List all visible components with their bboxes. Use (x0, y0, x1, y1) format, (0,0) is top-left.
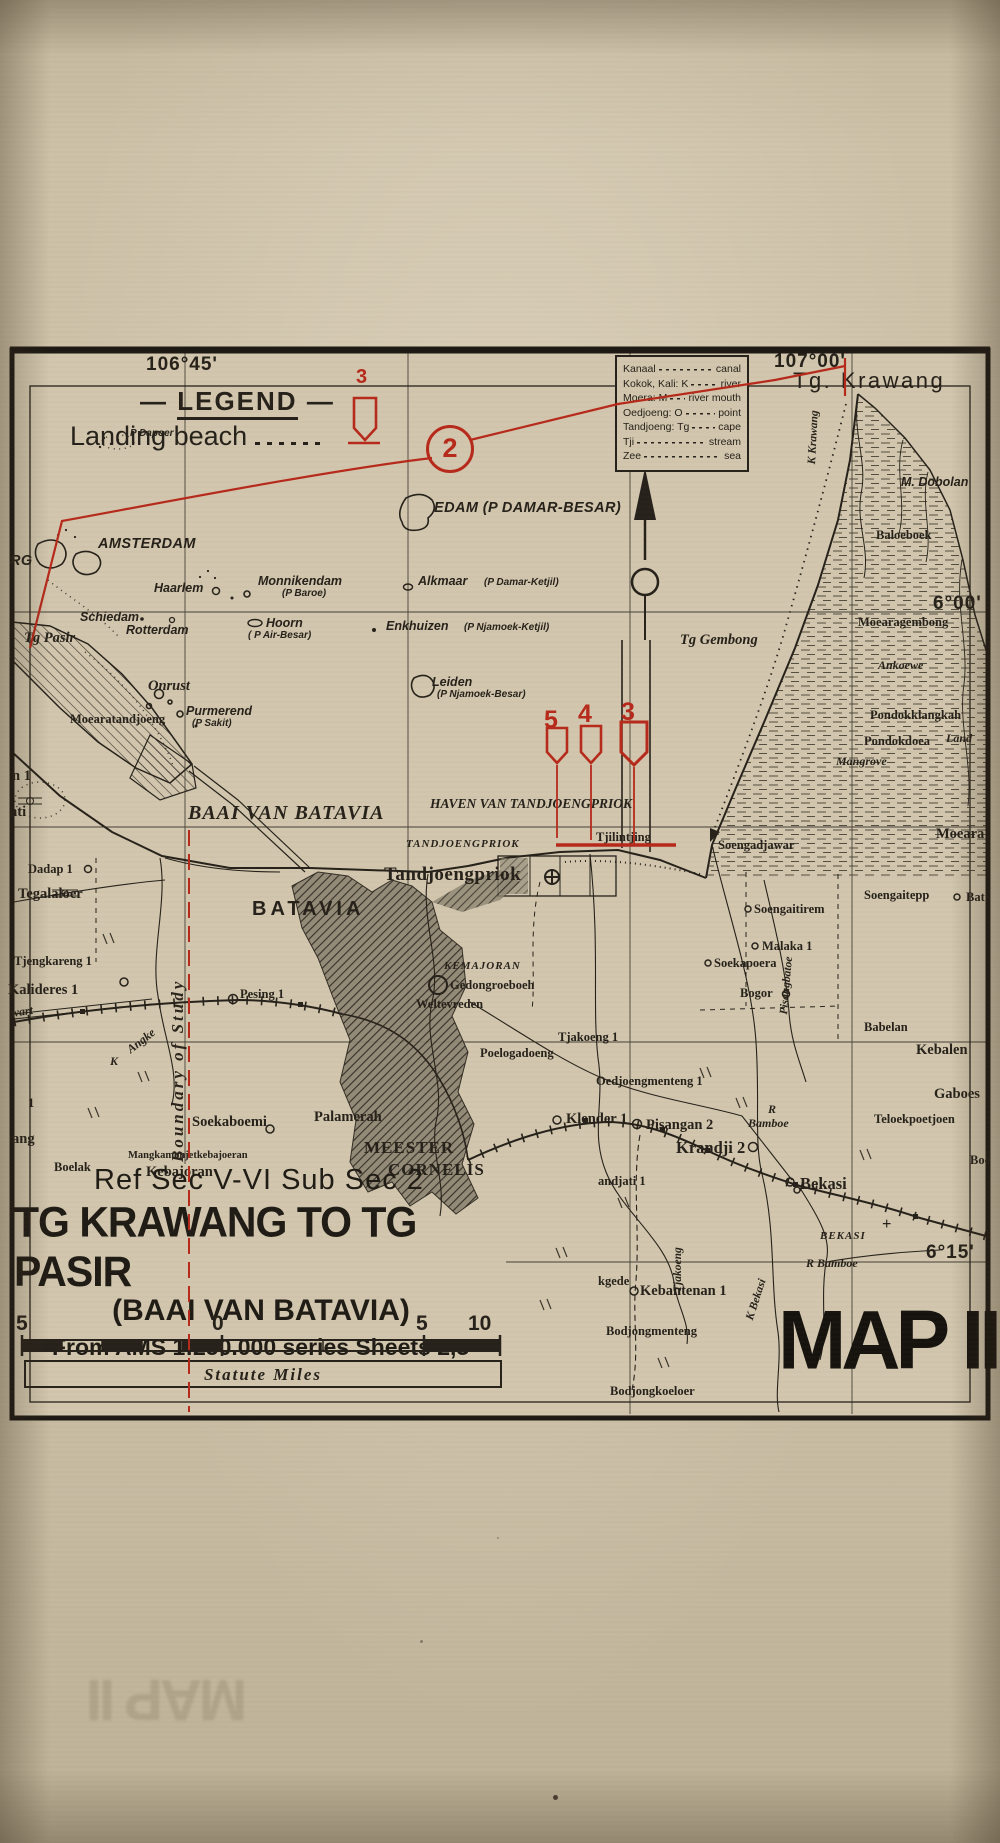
beach-number-3: 3 (621, 698, 635, 727)
map-label: Tjengkareng 1 (14, 954, 92, 969)
map-label: K (110, 1054, 118, 1069)
glossary-leader (670, 391, 685, 401)
map-label: Onrust (148, 678, 190, 695)
map-label: Poelogadoeng (480, 1046, 554, 1061)
map-label: Hoorn (266, 616, 303, 630)
map-label: Pondokklangkah (870, 708, 961, 723)
glossary-definition: river (721, 378, 741, 390)
legend-leader-dots (255, 431, 327, 445)
glossary-rows: KanaalcanalKokok, Kali: KriverMoera: Mri… (623, 362, 741, 464)
map-label: Oedjoengmenteng 1 (596, 1074, 703, 1089)
map-label: AMSTERDAM (98, 536, 196, 552)
map-label: Soekapoera (714, 956, 777, 971)
map-label: 6°00' (933, 593, 982, 615)
map-label: KEMAJORAN (444, 960, 521, 972)
map-label: Soengadjawar (718, 838, 794, 853)
map-label: Teloekpoetjoen (874, 1112, 955, 1127)
map-label: Pisangan 2 (646, 1117, 713, 1134)
scale-number: 0 (212, 1312, 224, 1336)
glossary-row: Tjistream (623, 435, 741, 450)
scale-number: 5 (16, 1312, 28, 1336)
map-label: Tegalaloer (18, 886, 83, 903)
glossary-row: Zeesea (623, 449, 741, 464)
glossary-term: Tji (623, 436, 634, 448)
glossary-leader (686, 406, 716, 416)
map-label: EDAM (P DAMAR-BESAR) (434, 500, 621, 516)
reference-line: Ref Sec V-VI Sub Sec 2 (94, 1164, 508, 1197)
map-label: Alkmaar (418, 574, 467, 588)
paper-speck (497, 1537, 499, 1539)
scale-number: 10 (468, 1312, 491, 1336)
map-label: Weltevreden (416, 997, 483, 1012)
map-label: BEKASI (820, 1230, 866, 1242)
map-label: Dadap 1 (28, 862, 73, 877)
map-label: R Bamboe (806, 1256, 858, 1271)
map-label: BAAI VAN BATAVIA (188, 802, 384, 825)
glossary-definition: sea (724, 450, 741, 462)
map-label: Malaka 1 (762, 939, 812, 954)
map-label: Gedongroeboeh (450, 978, 535, 993)
map-label: Kalideres 1 (8, 982, 78, 999)
map-label: Krandji 2 (676, 1138, 745, 1158)
map-label: M. Dobolan (901, 475, 968, 489)
map-label: Bodjongkoeloer (610, 1384, 695, 1399)
map-label: Tjakoeng 1 (558, 1030, 618, 1045)
legend-dash-right: — (307, 386, 335, 416)
legend-item-label: Landing beach (70, 421, 247, 452)
map-label: wart (10, 1003, 34, 1021)
map-label: Moeara (936, 826, 984, 843)
map-label: Land (946, 731, 972, 746)
map-label: Moearatandjoeng (70, 712, 165, 727)
map-label: ( P Air-Besar) (248, 630, 311, 641)
map-label: TANDJOENGPRIOK (406, 838, 520, 850)
map-label: kgede (598, 1274, 629, 1289)
map-label: Pesing 1 (240, 987, 284, 1002)
beach-number-5: 5 (544, 706, 558, 735)
map-label: Gaboes (934, 1086, 980, 1103)
map-label: Moearagembong (858, 615, 948, 630)
glossary-row: Kokok, Kali: Kriver (623, 377, 741, 392)
map-label: 6°15' (926, 1242, 975, 1264)
map-number: MAP II (778, 1293, 997, 1389)
map-label: HAVEN VAN TANDJOENGPRIOK (430, 796, 632, 812)
legend-dash-left: — (140, 386, 168, 416)
map-label: Bodjongmenteng (606, 1324, 697, 1339)
glossary-row: Tandjoeng: Tgcape (623, 420, 741, 435)
map-label: Tjilintjing (596, 830, 651, 845)
glossary-leader (644, 449, 721, 459)
map-label: R (768, 1102, 776, 1117)
map-label: Tg. Krawang (793, 368, 945, 394)
photographed-map-page: 106°45'107°00'6°00'6°15'Tg. KrawangM. Do… (0, 0, 1000, 1843)
glossary-leader (692, 420, 715, 430)
scale-units: Statute Miles (204, 1365, 322, 1384)
map-label: Mangrove (836, 754, 887, 769)
glossary-row: Kanaalcanal (623, 362, 741, 377)
map-label: BATAVIA (252, 898, 364, 921)
paper-speck (553, 1795, 558, 1800)
map-label: Tg Pasir (24, 630, 75, 647)
map-label: andjati 1 (598, 1174, 646, 1189)
legend-item-landing-beach: Landing beach (70, 421, 400, 452)
glossary-leader (659, 362, 713, 372)
glossary-leader (637, 435, 706, 445)
map-label: Rotterdam (126, 623, 189, 637)
scale-numbers: 50510 (16, 1312, 516, 1338)
glossary-definition: stream (709, 436, 741, 448)
map-label: Schiedam (80, 610, 139, 624)
map-label: Palamerah (314, 1109, 382, 1126)
glossary-term: Moera: M (623, 392, 667, 404)
map-label: Haarlem (154, 581, 203, 595)
map-label: K Krawang (806, 410, 821, 465)
map-label: (P Njamoek-Besar) (437, 689, 526, 700)
legend-title: LEGEND (177, 386, 297, 420)
map-label: Bamboe (748, 1116, 789, 1131)
map-label: (P Damar-Ketjil) (484, 577, 559, 588)
map-label: Tandjoengpriok (384, 864, 521, 886)
glossary-term: Tandjoeng: Tg (623, 421, 689, 433)
map-label: Purmerend (186, 704, 252, 718)
glossary-term: Kokok, Kali: K (623, 378, 688, 390)
map-label: (P Njamoek-Ketjil) (464, 622, 549, 633)
map-label-layer: 106°45'107°00'6°00'6°15'Tg. KrawangM. Do… (0, 0, 1000, 1843)
paper-speck (420, 1640, 423, 1643)
map-label: 106°45' (146, 354, 218, 376)
glossary-row: Moera: Mriver mouth (623, 391, 741, 406)
map-label: 1 (28, 1096, 34, 1111)
map-label: Kebalen (916, 1042, 968, 1059)
glossary-row: Oedjoeng: Opoint (623, 406, 741, 421)
glossary-term: Oedjoeng: O (623, 407, 683, 419)
legend-title-row: — LEGEND — (140, 386, 400, 417)
map-legend: — LEGEND — Landing beach (70, 386, 400, 452)
map-label: Bat (966, 890, 985, 905)
map-label: Tg Gembong (680, 632, 758, 649)
map-label: Baloeboek (876, 528, 932, 543)
glossary-term: Zee (623, 450, 641, 462)
boundary-of-study-label: Boundary of Study (168, 979, 188, 1162)
map-label: MEESTER (364, 1138, 454, 1158)
glossary-term: Kanaal (623, 363, 656, 375)
glossary-definition: river mouth (688, 392, 741, 404)
map-label: ati (10, 804, 26, 821)
map-label: (P Sakit) (192, 718, 232, 729)
map-label: Leiden (432, 675, 472, 689)
map-label: + (882, 1214, 891, 1234)
beach-number-4: 4 (578, 700, 592, 729)
map-label: Monnikendam (258, 574, 342, 588)
map-label: Klender 1 (566, 1111, 627, 1128)
map-label: Babelan (864, 1020, 908, 1035)
map-label: Soekaboemi (192, 1114, 267, 1131)
map-label: Enkhuizen (386, 619, 449, 633)
map-label: Angke (124, 1025, 158, 1057)
map-label: Pondokdoea (864, 734, 930, 749)
map-label: RG (10, 553, 33, 569)
map-label: (P Baroe) (282, 588, 326, 599)
map-source: From AMS 1:250.000 series Sheets 2,3 (52, 1334, 508, 1361)
glossary-box: KanaalcanalKokok, Kali: KriverMoera: Mri… (615, 355, 749, 472)
map-label: Bogor (740, 986, 773, 1001)
map-label: Ankoewe (878, 658, 923, 673)
scale-number: 5 (416, 1312, 428, 1336)
map-label: Tjakoeng (672, 1247, 684, 1292)
map-label: K Bekasi (744, 1278, 769, 1322)
glossary-definition: point (718, 407, 741, 419)
map-label: Soengaitirem (754, 902, 825, 917)
glossary-definition: canal (716, 363, 741, 375)
map-label: Boe (970, 1153, 990, 1168)
scale-units-box: Statute Miles (24, 1360, 502, 1388)
glossary-definition: cape (718, 421, 741, 433)
circled-2-marker: 2 (426, 425, 474, 473)
map-label: Bekasi (800, 1174, 847, 1194)
map-label: Pisangbatoe (778, 956, 795, 1015)
ghost-showthrough-text: MAP II (28, 1666, 308, 1733)
map-label: ang (12, 1131, 35, 1148)
glossary-leader (691, 377, 717, 387)
map-title: TG KRAWANG TO TG PASIR (14, 1198, 508, 1297)
map-label: Soengaitepp (864, 888, 929, 903)
map-label: n 1 (12, 768, 31, 785)
